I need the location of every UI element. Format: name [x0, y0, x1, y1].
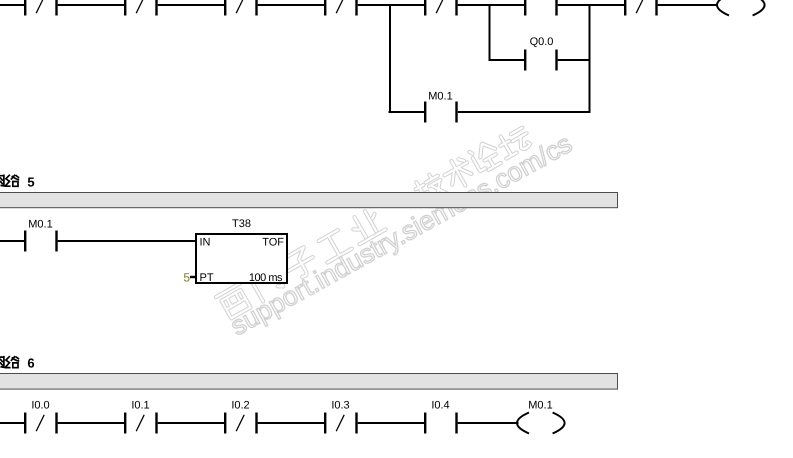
svg-text:I0.4: I0.4	[431, 400, 449, 412]
svg-text:6: 6	[27, 356, 34, 371]
svg-text:PT: PT	[200, 272, 214, 284]
svg-text:5: 5	[183, 271, 190, 285]
svg-text:I0.1: I0.1	[131, 400, 149, 412]
svg-text:TOF: TOF	[262, 237, 284, 249]
svg-text:M0.1: M0.1	[28, 219, 52, 231]
svg-text:IN: IN	[200, 237, 211, 249]
svg-text:M0.1: M0.1	[428, 91, 452, 103]
svg-text:5: 5	[27, 174, 34, 189]
svg-text:100 ms: 100 ms	[249, 272, 283, 284]
svg-text:M0.1: M0.1	[528, 400, 552, 412]
svg-text:I0.3: I0.3	[331, 400, 349, 412]
svg-text:I0.2: I0.2	[231, 400, 249, 412]
svg-text:Q0.0: Q0.0	[530, 36, 554, 48]
svg-text:I0.0: I0.0	[31, 400, 49, 412]
svg-text:T38: T38	[232, 218, 251, 230]
